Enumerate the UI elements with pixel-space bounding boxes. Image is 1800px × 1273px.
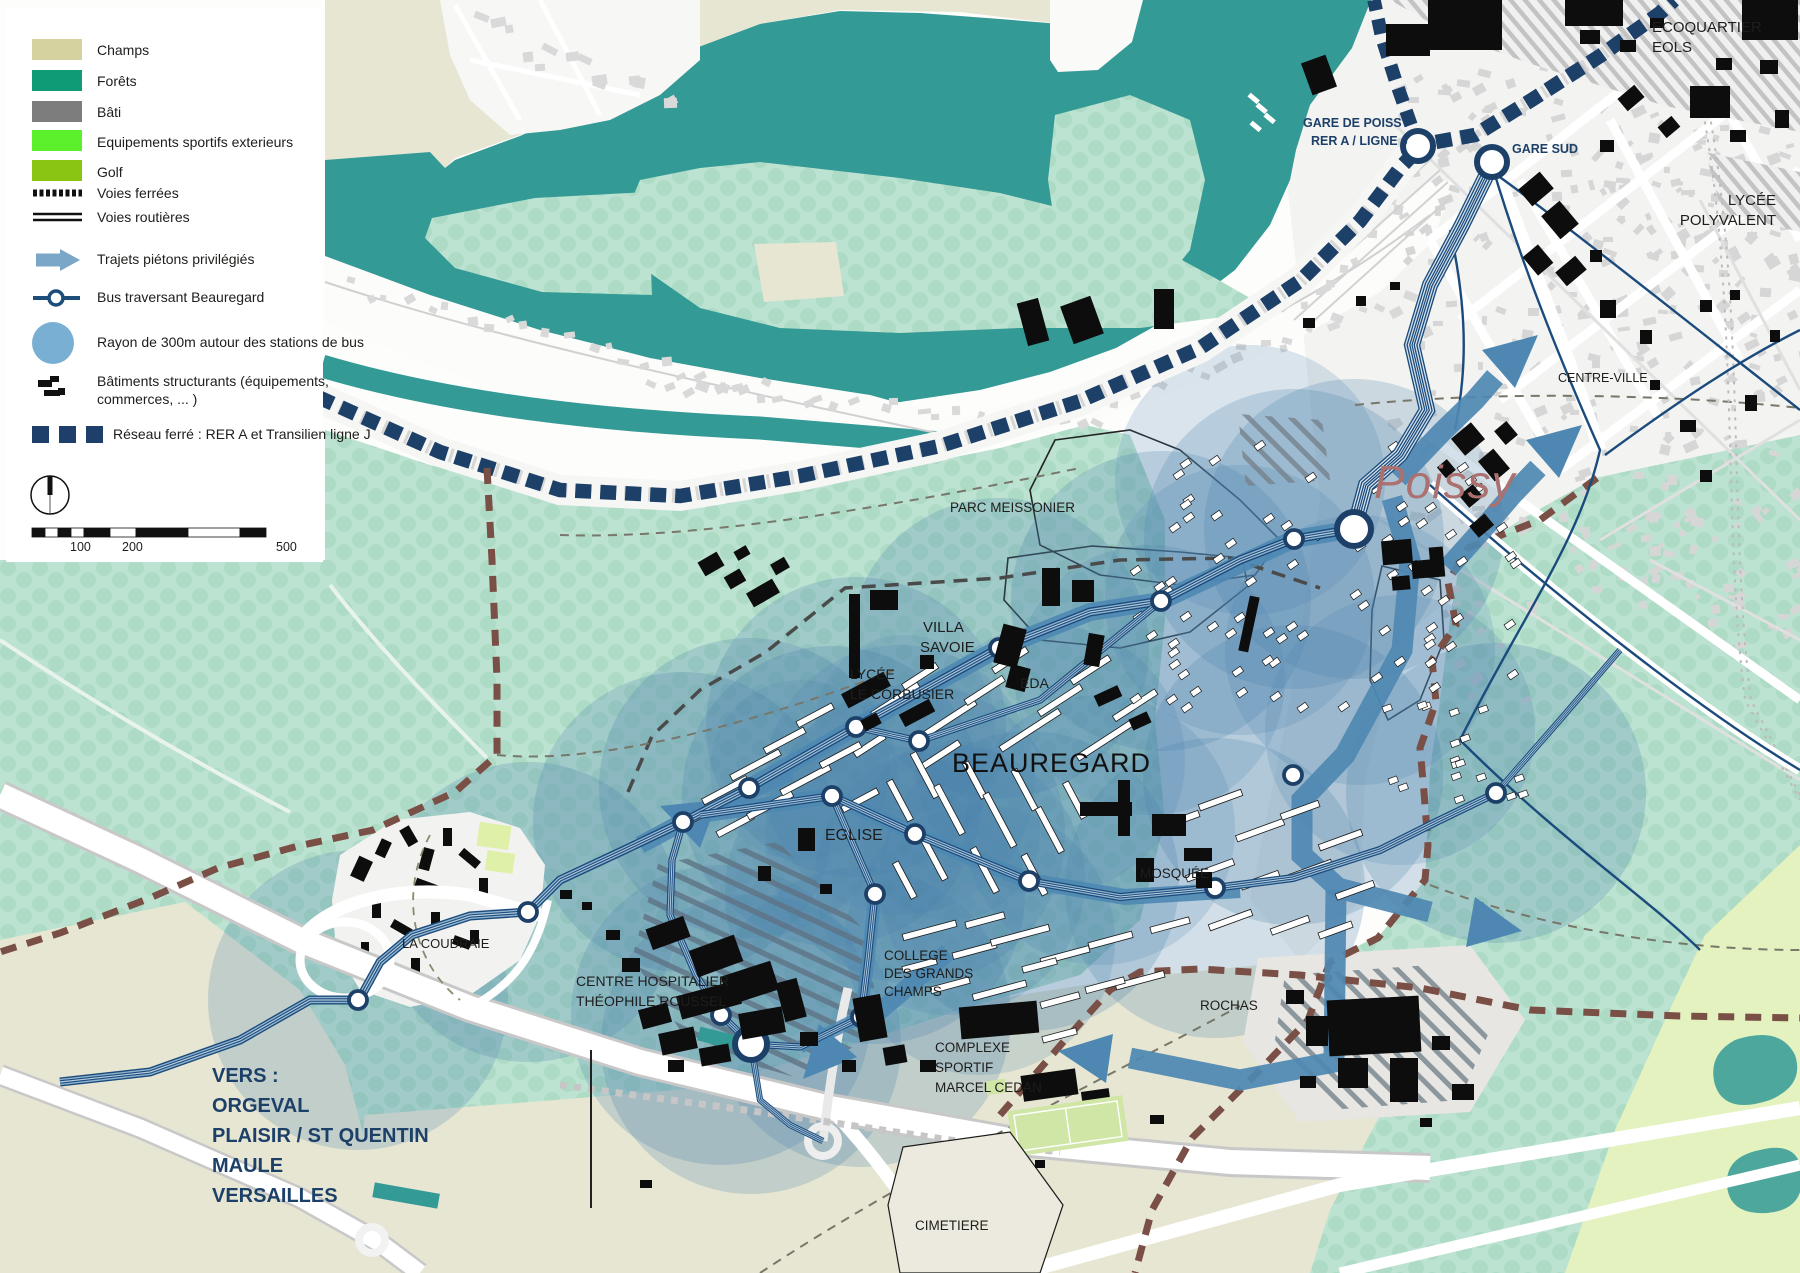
svg-text:PLAISIR / ST QUENTIN: PLAISIR / ST QUENTIN [212,1125,429,1147]
svg-text:Bâtiments structurants (équipe: Bâtiments structurants (équipements, [97,373,329,389]
svg-text:POLYVALENT: POLYVALENT [1680,212,1776,229]
svg-text:commerces, ... ): commerces, ... ) [97,391,197,407]
svg-text:ECOQUARTIER: ECOQUARTIER [1652,19,1762,36]
svg-text:Réseau ferré : RER A et Transi: Réseau ferré : RER A et Transilien ligne… [113,426,371,442]
svg-text:PARC MEISSONIER: PARC MEISSONIER [950,500,1075,515]
svg-text:ROCHAS: ROCHAS [1200,998,1258,1013]
svg-text:LA COUDRAIE: LA COUDRAIE [402,936,490,951]
svg-text:SPORTIF: SPORTIF [935,1060,993,1075]
svg-text:COLLEGE: COLLEGE [884,948,948,963]
svg-text:GARE SUD: GARE SUD [1512,142,1578,156]
svg-text:BEAUREGARD: BEAUREGARD [952,748,1151,778]
svg-text:Voies routières: Voies routières [97,209,190,225]
svg-text:MAULE: MAULE [212,1155,283,1177]
svg-text:EOLS: EOLS [1652,39,1692,56]
svg-text:LYCÉE: LYCÉE [1728,192,1776,209]
svg-text:Bâti: Bâti [97,104,121,120]
svg-text:EGLISE: EGLISE [825,827,883,844]
svg-text:CENTRE-VILLE: CENTRE-VILLE [1558,371,1648,385]
svg-text:CENTRE HOSPITALIER: CENTRE HOSPITALIER [576,973,729,989]
svg-text:MARCEL CEDAN: MARCEL CEDAN [935,1080,1042,1095]
svg-text:LE CORBUSIER: LE CORBUSIER [850,686,954,702]
svg-text:VILLA: VILLA [923,619,964,636]
svg-text:LYCÉE: LYCÉE [850,666,895,682]
svg-text:RER A / LIGNE J: RER A / LIGNE J [1311,134,1408,148]
svg-text:Bus traversant Beauregard: Bus traversant Beauregard [97,289,264,305]
svg-text:Rayon de 300m autour des stati: Rayon de 300m autour des stations de bus [97,334,364,350]
svg-text:500: 500 [276,540,297,554]
svg-text:ORGEVAL: ORGEVAL [212,1095,309,1117]
svg-text:EDA: EDA [1020,675,1049,691]
svg-text:Golf: Golf [97,164,123,180]
svg-text:COMPLEXE: COMPLEXE [935,1040,1010,1055]
svg-text:VERSAILLES: VERSAILLES [212,1185,338,1207]
svg-text:100: 100 [70,540,91,554]
svg-text:200: 200 [122,540,143,554]
svg-text:Equipements sportifs exterieur: Equipements sportifs exterieurs [97,134,293,150]
svg-text:DES GRANDS: DES GRANDS [884,966,973,981]
svg-text:CHAMPS: CHAMPS [884,984,942,999]
svg-text:Champs: Champs [97,42,149,58]
svg-text:Voies ferrées: Voies ferrées [97,185,179,201]
svg-text:Forêts: Forêts [97,73,137,89]
svg-text:MOSQUÉE: MOSQUÉE [1140,866,1209,881]
svg-text:Poissy: Poissy [1374,456,1517,508]
svg-text:CIMETIERE: CIMETIERE [915,1218,989,1233]
svg-text:Trajets piétons privilégiés: Trajets piétons privilégiés [97,251,254,267]
svg-text:THÉOPHILE ROUSSEL: THÉOPHILE ROUSSEL [576,993,726,1009]
svg-text:GARE DE POISSY: GARE DE POISSY [1303,116,1411,130]
svg-text:SAVOIE: SAVOIE [920,639,975,656]
svg-text:VERS :: VERS : [212,1065,279,1087]
